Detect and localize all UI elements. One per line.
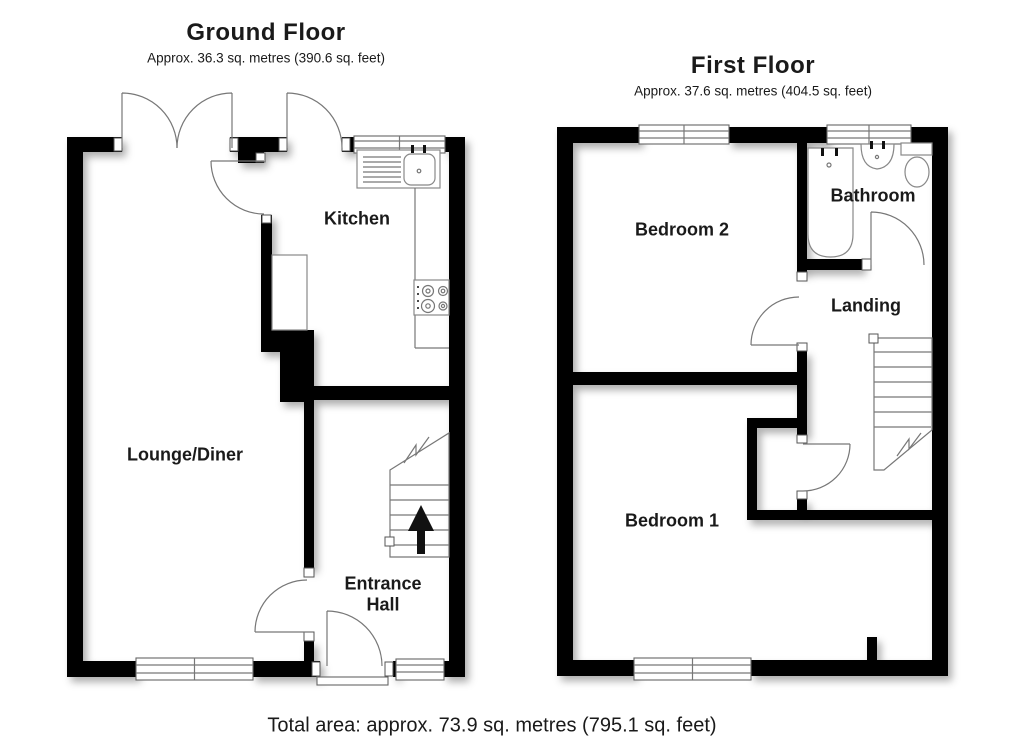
french-doors-arc bbox=[122, 93, 232, 148]
room-label-lounge-diner: Lounge/Diner bbox=[127, 445, 243, 466]
back-door-arc bbox=[287, 93, 342, 148]
front-door-arc bbox=[327, 611, 382, 666]
ground-floor-title: Ground Floor bbox=[186, 19, 345, 47]
door-jambs bbox=[114, 138, 871, 676]
wash-basin bbox=[861, 141, 894, 169]
up-arrow bbox=[408, 505, 434, 554]
lounge-door-arc bbox=[255, 580, 307, 632]
first-floor-walls bbox=[557, 127, 948, 676]
room-label-kitchen: Kitchen bbox=[324, 209, 390, 230]
lounge-window bbox=[136, 658, 253, 680]
ground-floor-subtitle: Approx. 36.3 sq. metres (390.6 sq. feet) bbox=[147, 51, 385, 66]
cupboard-door-arc bbox=[803, 444, 850, 491]
bathroom-window bbox=[827, 125, 911, 144]
total-area-label: Total area: approx. 73.9 sq. metres (795… bbox=[267, 715, 716, 738]
hob bbox=[414, 280, 449, 315]
stairs-first-floor bbox=[869, 334, 932, 470]
room-label-bedroom2: Bedroom 2 bbox=[635, 220, 729, 241]
first-floor-subtitle: Approx. 37.6 sq. metres (404.5 sq. feet) bbox=[634, 84, 872, 99]
kitchen-door-arc bbox=[211, 161, 264, 214]
toilet bbox=[901, 143, 932, 187]
stairs-ground-floor bbox=[385, 433, 449, 557]
kitchen-counter bbox=[415, 188, 449, 348]
room-label-bedroom1: Bedroom 1 bbox=[625, 511, 719, 532]
floorplan-drawing bbox=[0, 0, 1024, 745]
chimney-recess bbox=[272, 255, 307, 330]
room-label-landing: Landing bbox=[831, 296, 901, 317]
hall-window bbox=[396, 659, 444, 680]
room-label-bathroom: Bathroom bbox=[831, 186, 916, 207]
bedroom2-door-arc bbox=[751, 297, 799, 345]
room-label-entrance-hall: Entrance Hall bbox=[344, 573, 421, 614]
bathroom-door-arc bbox=[871, 212, 924, 265]
kitchen-sink bbox=[357, 145, 440, 188]
front-door-threshold bbox=[317, 677, 388, 685]
first-floor-title: First Floor bbox=[691, 52, 815, 80]
bedroom1-window bbox=[634, 658, 751, 680]
floorplan-page: Ground Floor Approx. 36.3 sq. metres (39… bbox=[0, 0, 1024, 745]
windows bbox=[136, 125, 911, 685]
bedroom2-window bbox=[639, 125, 729, 144]
